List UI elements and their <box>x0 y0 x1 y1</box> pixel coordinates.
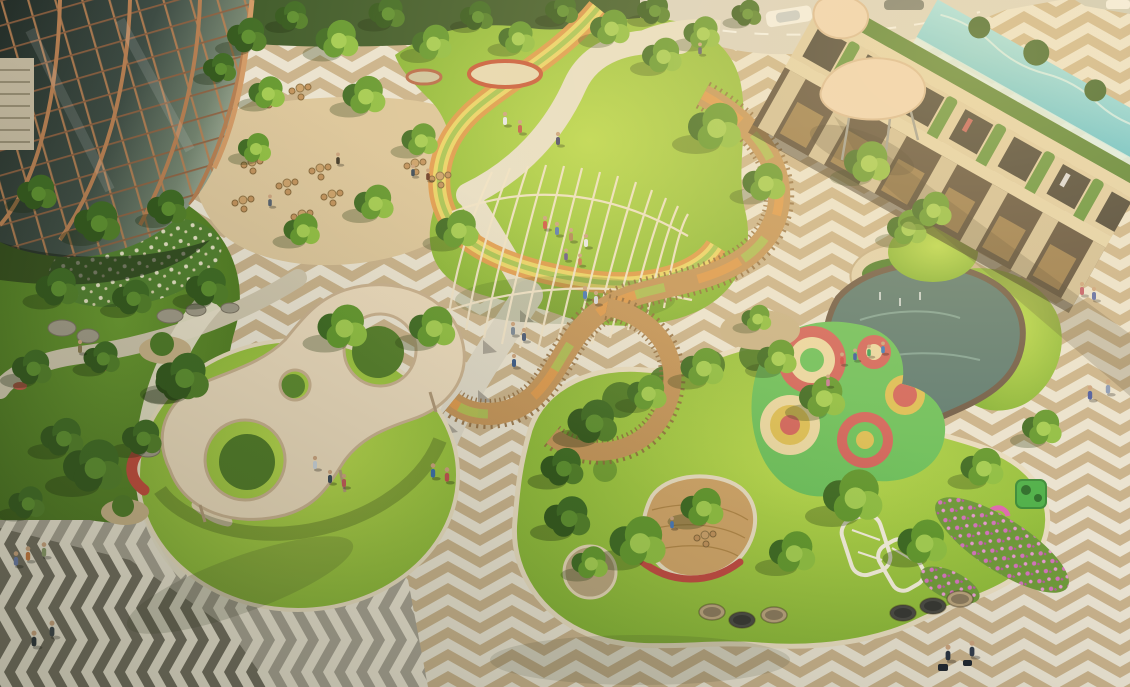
rendering-stage: Aerial architectural rendering of a land… <box>0 0 1130 687</box>
scene-canvas: Aerial architectural rendering of a land… <box>0 0 1130 687</box>
corner-shade <box>0 0 1130 687</box>
